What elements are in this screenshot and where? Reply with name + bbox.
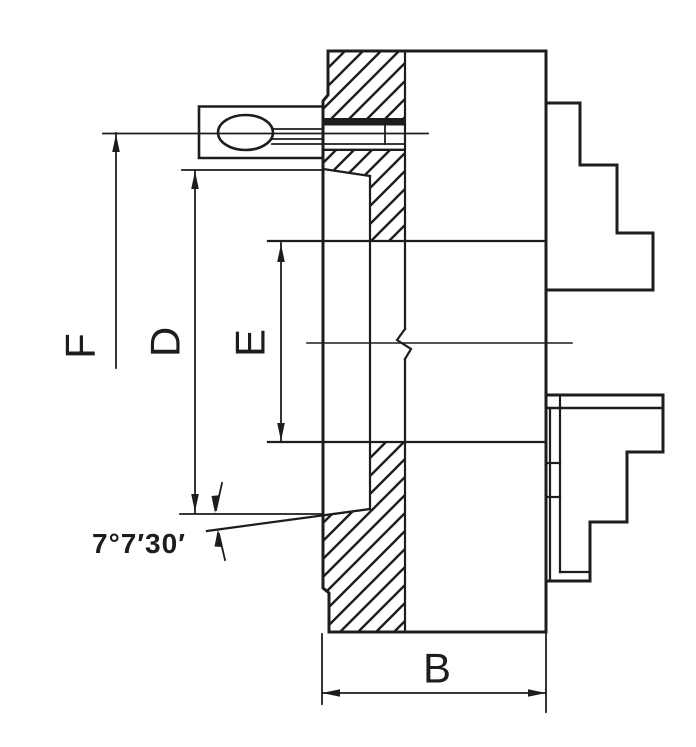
hatch-upper-mid-flange (323, 150, 405, 241)
dim-d-arrow-down (191, 494, 199, 512)
key-ellipse (218, 115, 273, 150)
angle-dimension (212, 483, 226, 560)
dimension-e (277, 243, 285, 442)
dim-e-arrow-up (277, 244, 285, 262)
technical-drawing-page: F D E B 7°7′30′ (0, 0, 696, 747)
hatch-bottom-flange (323, 442, 405, 632)
bottom-jaw (547, 395, 663, 581)
chuck-section-drawing: F D E B 7°7′30′ (0, 0, 696, 747)
dim-b-arrow-left (322, 689, 340, 696)
bottom-jaw-outline (547, 395, 663, 581)
hatch-top-flange (323, 51, 405, 119)
label-diameter-f: F (57, 333, 104, 359)
dim-b-arrow-right (528, 689, 546, 696)
angle-dim-arrow-bottom (215, 529, 223, 547)
slot-thick-bar (323, 119, 405, 126)
dim-d-arrow-up (191, 171, 199, 189)
flange-joint-break (397, 329, 411, 359)
top-jaw (546, 103, 653, 290)
label-taper-angle: 7°7′30′ (92, 528, 186, 559)
top-jaw-outline (546, 103, 653, 290)
dim-f-arrow-up (112, 134, 120, 152)
label-diameter-d: D (142, 327, 189, 357)
section-hatching (323, 51, 405, 632)
dim-e-arrow-down (277, 423, 285, 441)
label-width-b: B (423, 645, 451, 692)
dimension-f (112, 133, 120, 368)
label-diameter-e: E (227, 329, 274, 357)
